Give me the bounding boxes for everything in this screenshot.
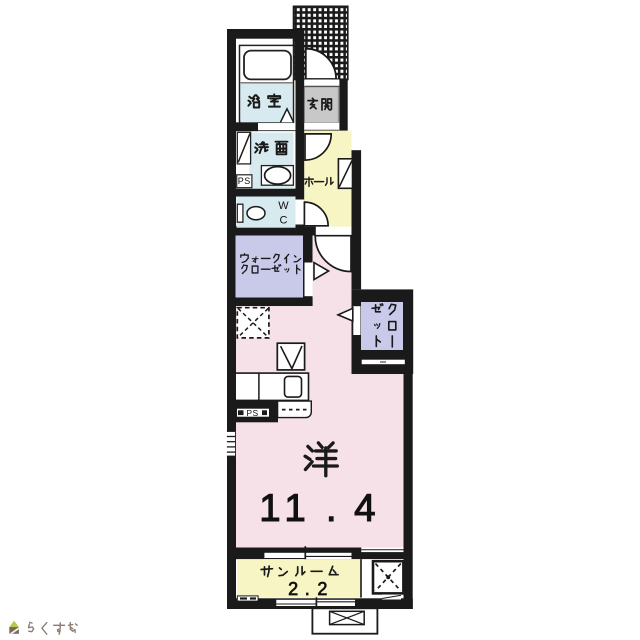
svg-text:4: 4 (354, 487, 375, 530)
svg-text:W: W (278, 200, 289, 212)
svg-text:PS: PS (246, 408, 258, 418)
svg-text:C: C (280, 215, 288, 227)
svg-text:1: 1 (284, 487, 305, 530)
svg-text:2: 2 (317, 579, 327, 599)
svg-text:1: 1 (259, 487, 280, 530)
svg-text:PS: PS (238, 176, 251, 186)
svg-text:2: 2 (288, 579, 298, 599)
svg-text:.: . (326, 487, 337, 530)
svg-text:.: . (305, 579, 310, 599)
